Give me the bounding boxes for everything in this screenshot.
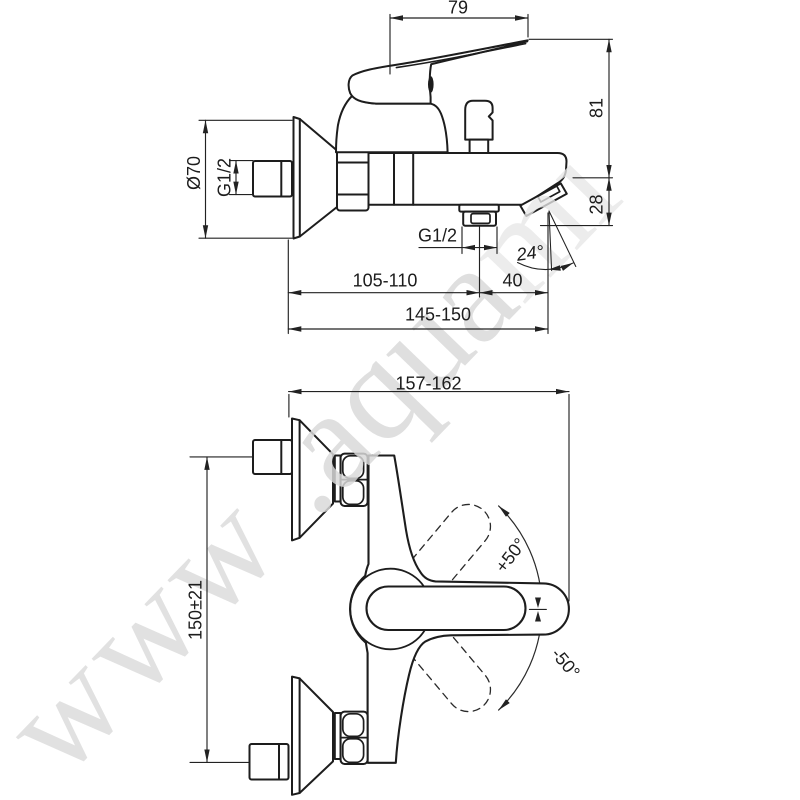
svg-text:40: 40 — [502, 271, 522, 291]
svg-text:G1/2: G1/2 — [215, 158, 235, 197]
svg-text:G1/2: G1/2 — [418, 225, 457, 245]
svg-text:81: 81 — [587, 98, 607, 118]
svg-text:145-150: 145-150 — [405, 305, 471, 325]
svg-text:24°: 24° — [514, 241, 545, 265]
svg-text:28: 28 — [587, 194, 607, 214]
svg-text:157-162: 157-162 — [395, 374, 461, 394]
svg-text:-50°: -50° — [547, 644, 584, 682]
svg-text:Ø70: Ø70 — [184, 156, 204, 190]
svg-text:79: 79 — [448, 0, 468, 18]
svg-text:150±21: 150±21 — [186, 580, 206, 640]
svg-text:105-110: 105-110 — [353, 271, 418, 291]
